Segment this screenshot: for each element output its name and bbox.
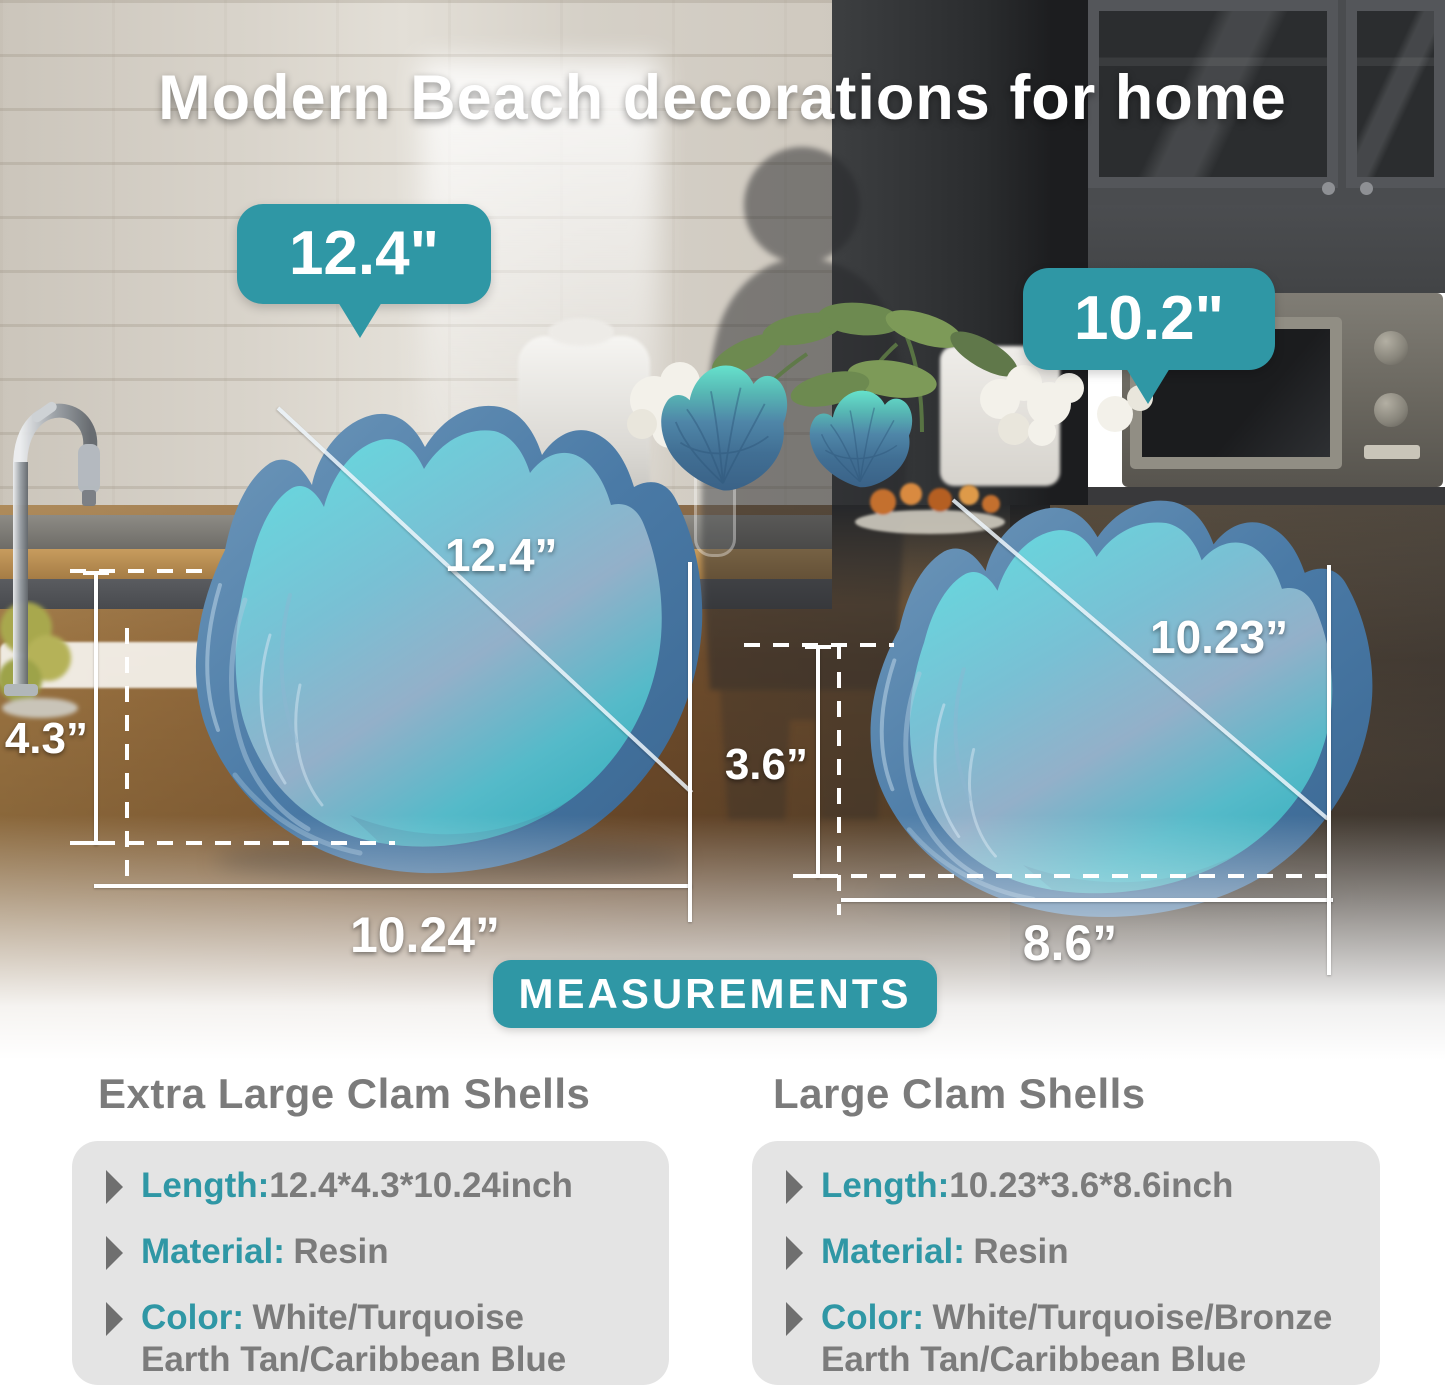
triangle-bullet-icon bbox=[106, 1170, 123, 1204]
spec-row-length: Length:12.4*4.3*10.24inch bbox=[106, 1165, 649, 1207]
spec-label: Length: bbox=[141, 1166, 269, 1205]
measurements-banner: MEASUREMENTS bbox=[493, 960, 937, 1028]
left-shell-height-line bbox=[94, 571, 98, 845]
microwave-knob-icon bbox=[1374, 393, 1408, 427]
right-shell-width-label: 8.6” bbox=[1000, 914, 1140, 972]
spec-label: Color: bbox=[141, 1298, 244, 1337]
left-size-callout-text: 12.4" bbox=[289, 219, 439, 288]
spec-value: Resin bbox=[293, 1232, 388, 1271]
kitchen-faucet bbox=[2, 362, 102, 697]
right-shell-diagonal-label: 10.23” bbox=[1150, 610, 1288, 664]
spec-card-extra-large: Length:12.4*4.3*10.24inch Material:Resin… bbox=[72, 1141, 669, 1385]
cabinet-knob-icon bbox=[1360, 182, 1373, 195]
left-shell-width-end-tick bbox=[688, 562, 692, 922]
spec-row-material: Material:Resin bbox=[786, 1231, 1360, 1273]
triangle-bullet-icon bbox=[786, 1236, 803, 1270]
right-shell-base-reference-line bbox=[793, 874, 1333, 878]
spec-row-material: Material:Resin bbox=[106, 1231, 649, 1273]
spec-label: Color: bbox=[821, 1298, 924, 1337]
right-size-callout: 10.2" bbox=[1023, 268, 1275, 370]
spec-text: Length:10.23*3.6*8.6inch bbox=[821, 1165, 1233, 1207]
spec-value: White/Turquoise bbox=[252, 1298, 524, 1337]
spec-value-line2: Earth Tan/Caribbean Blue bbox=[821, 1339, 1332, 1381]
triangle-bullet-icon bbox=[786, 1302, 803, 1336]
microwave-knob-icon bbox=[1374, 331, 1408, 365]
spec-value-line2: Earth Tan/Caribbean Blue bbox=[141, 1339, 566, 1381]
spec-row-length: Length:10.23*3.6*8.6inch bbox=[786, 1165, 1360, 1207]
spec-value: White/Turquoise/Bronze bbox=[932, 1298, 1332, 1337]
triangle-bullet-icon bbox=[106, 1302, 123, 1336]
spec-label: Material: bbox=[821, 1232, 965, 1271]
spec-row-color: Color:White/Turquoise/Bronze Earth Tan/C… bbox=[786, 1297, 1360, 1381]
callout-pointer-icon bbox=[1126, 368, 1170, 404]
cabinet-knob-icon bbox=[1322, 182, 1335, 195]
microwave-button bbox=[1364, 445, 1420, 459]
spec-text: Material:Resin bbox=[141, 1231, 389, 1273]
left-shell-width-line bbox=[94, 884, 692, 888]
product-heading-extra-large: Extra Large Clam Shells bbox=[98, 1070, 590, 1118]
spec-value: 10.23*3.6*8.6inch bbox=[949, 1166, 1233, 1205]
left-shell-height-label: 4.3” bbox=[0, 714, 88, 764]
left-shell-width-label: 10.24” bbox=[340, 906, 510, 964]
right-shell-width-line bbox=[841, 898, 1333, 902]
triangle-bullet-icon bbox=[786, 1170, 803, 1204]
spec-label: Material: bbox=[141, 1232, 285, 1271]
spec-value: 12.4*4.3*10.24inch bbox=[269, 1166, 573, 1205]
left-shell-base-reference-line bbox=[70, 841, 395, 845]
small-clam-shell-back-right bbox=[799, 384, 921, 490]
spec-text: Length:12.4*4.3*10.24inch bbox=[141, 1165, 573, 1207]
main-title: Modern Beach decorations for home bbox=[0, 62, 1445, 134]
right-size-callout-text: 10.2" bbox=[1074, 284, 1224, 353]
spec-label: Length: bbox=[821, 1166, 949, 1205]
product-heading-large: Large Clam Shells bbox=[773, 1070, 1146, 1118]
spec-text: Material:Resin bbox=[821, 1231, 1069, 1273]
spec-card-large: Length:10.23*3.6*8.6inch Material:Resin … bbox=[752, 1141, 1380, 1385]
callout-pointer-icon bbox=[338, 302, 382, 338]
left-size-callout: 12.4" bbox=[237, 204, 491, 304]
spec-text: Color:White/Turquoise/Bronze Earth Tan/C… bbox=[821, 1297, 1332, 1381]
left-shell-diagonal-label: 12.4” bbox=[445, 528, 558, 582]
left-shell-dashed-vertical bbox=[125, 628, 129, 886]
spec-value: Resin bbox=[973, 1232, 1068, 1271]
right-shell-width-end-tick bbox=[1327, 565, 1331, 975]
triangle-bullet-icon bbox=[106, 1236, 123, 1270]
spec-text: Color:White/Turquoise Earth Tan/Caribbea… bbox=[141, 1297, 566, 1381]
right-shell-height-label: 3.6” bbox=[722, 740, 808, 790]
spec-row-color: Color:White/Turquoise Earth Tan/Caribbea… bbox=[106, 1297, 649, 1381]
product-infographic: Modern Beach decorations for home 12.4" … bbox=[0, 0, 1445, 1393]
right-shell-height-line bbox=[816, 645, 820, 878]
